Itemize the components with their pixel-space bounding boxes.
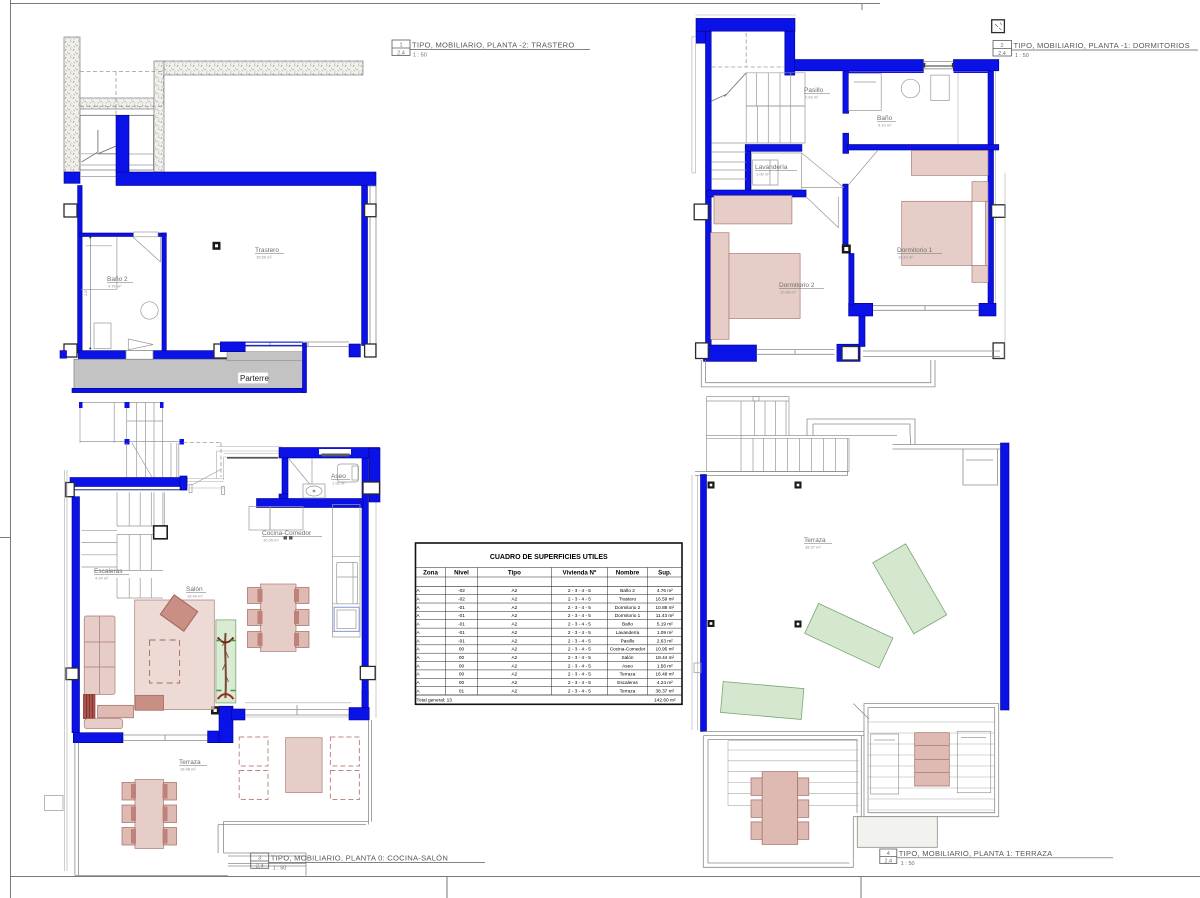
svg-text:16.48 m²: 16.48 m² [180, 767, 196, 772]
svg-text:A2: A2 [512, 647, 518, 652]
svg-text:00: 00 [459, 655, 465, 660]
svg-text:2 - 3 - 4 - 5: 2 - 3 - 4 - 5 [568, 588, 591, 593]
svg-text:4.24 m²: 4.24 m² [95, 576, 109, 581]
svg-text:38.37 m²: 38.37 m² [656, 688, 675, 693]
svg-text:01: 01 [459, 688, 465, 693]
svg-text:2 - 3 - 4 - 5: 2 - 3 - 4 - 5 [568, 596, 591, 601]
svg-text:A2: A2 [512, 680, 518, 685]
svg-text:Baño 2: Baño 2 [620, 588, 635, 593]
svg-text:-01: -01 [458, 622, 465, 627]
svg-text:Pasillo: Pasillo [621, 638, 635, 643]
svg-text:2 - 3 - 4 - 5: 2 - 3 - 4 - 5 [568, 622, 591, 627]
svg-text:1.09 m²: 1.09 m² [657, 630, 673, 635]
svg-text:2 - 3 - 4 - 5: 2 - 3 - 4 - 5 [568, 605, 591, 610]
svg-text:2.63 m²: 2.63 m² [805, 95, 819, 100]
svg-text:Cocina-Comedor: Cocina-Comedor [262, 530, 312, 537]
svg-text:2 - 3 - 4 - 5: 2 - 3 - 4 - 5 [568, 680, 591, 685]
svg-text:2 - 3 - 4 - 5: 2 - 3 - 4 - 5 [568, 663, 591, 668]
svg-text:A2: A2 [512, 638, 518, 643]
svg-text:TIPO, MOBILIARIO, PLANTA -1: D: TIPO, MOBILIARIO, PLANTA -1: DORMITORIOS [1014, 41, 1190, 50]
svg-text:Terraza: Terraza [179, 759, 201, 766]
svg-text:Dormitorio 2: Dormitorio 2 [779, 282, 815, 289]
svg-text:-01: -01 [458, 630, 465, 635]
svg-text:Dormitorio 1: Dormitorio 1 [897, 247, 933, 254]
svg-text:Tipo: Tipo [508, 570, 521, 577]
svg-text:10.88 m²: 10.88 m² [780, 290, 796, 295]
svg-text:Parterre: Parterre [240, 374, 269, 383]
svg-text:2.8: 2.8 [83, 290, 88, 296]
svg-text:2 - 3 - 4 - 5: 2 - 3 - 4 - 5 [568, 647, 591, 652]
svg-text:4.76 m²: 4.76 m² [657, 588, 673, 593]
svg-text:00: 00 [459, 680, 465, 685]
svg-text:Baño: Baño [622, 622, 633, 627]
svg-text:CUADRO DE SUPERFICIES UTILES: CUADRO DE SUPERFICIES UTILES [490, 554, 608, 561]
svg-text:A2: A2 [512, 663, 518, 668]
svg-text:16.59 m²: 16.59 m² [656, 596, 675, 601]
svg-text:00: 00 [459, 647, 465, 652]
svg-text:TIPO, MOBILIARIO, PLANTA 1: TE: TIPO, MOBILIARIO, PLANTA 1: TERRAZA [899, 849, 1053, 858]
svg-text:A2: A2 [512, 622, 518, 627]
svg-text:Cocina-Comedor: Cocina-Comedor [610, 647, 646, 652]
svg-text:2.4: 2.4 [884, 858, 892, 864]
svg-text:Nombre: Nombre [616, 570, 640, 577]
svg-text:A2: A2 [512, 672, 518, 677]
svg-text:2 - 3 - 4 - 5: 2 - 3 - 4 - 5 [568, 672, 591, 677]
svg-text:2 - 3 - 4 - 5: 2 - 3 - 4 - 5 [568, 655, 591, 660]
svg-text:A2: A2 [512, 613, 518, 618]
svg-text:2 - 3 - 4 - 5: 2 - 3 - 4 - 5 [568, 638, 591, 643]
svg-text:Lavandería: Lavandería [616, 630, 640, 635]
svg-text:-01: -01 [458, 605, 465, 610]
svg-text:Trastero: Trastero [619, 596, 637, 601]
svg-text:A2: A2 [512, 596, 518, 601]
svg-text:142.60 m²: 142.60 m² [654, 698, 676, 704]
svg-text:Vivienda Nº: Vivienda Nº [563, 570, 598, 577]
svg-text:4.24 m²: 4.24 m² [657, 680, 673, 685]
svg-text:1 : 50: 1 : 50 [1015, 53, 1029, 59]
svg-text:10.95 m²: 10.95 m² [263, 538, 279, 543]
svg-text:Lavandería: Lavandería [755, 164, 788, 171]
svg-text:-01: -01 [458, 638, 465, 643]
svg-text:A2: A2 [512, 688, 518, 693]
svg-text:Terraza: Terraza [620, 672, 636, 677]
svg-text:38.37 m²: 38.37 m² [805, 545, 821, 550]
svg-text:-01: -01 [458, 613, 465, 618]
svg-text:Terraza: Terraza [804, 537, 826, 544]
svg-text:4.76 m²: 4.76 m² [108, 284, 122, 289]
svg-text:Baño 2: Baño 2 [107, 276, 128, 283]
svg-text:1 : 50: 1 : 50 [273, 866, 287, 872]
svg-text:Salón: Salón [186, 586, 203, 593]
svg-text:2 - 3 - 4 - 5: 2 - 3 - 4 - 5 [568, 630, 591, 635]
svg-text:Trastero: Trastero [255, 247, 279, 254]
svg-text:Salón: Salón [622, 655, 634, 660]
svg-text:2.4: 2.4 [998, 51, 1006, 57]
svg-text:16.48 m²: 16.48 m² [656, 672, 675, 677]
svg-text:Sup.: Sup. [658, 570, 672, 577]
svg-text:1.56 m²: 1.56 m² [657, 663, 673, 668]
svg-text:TIPO, MOBILIARIO, PLANTA -2: T: TIPO, MOBILIARIO, PLANTA -2: TRASTERO [412, 41, 575, 50]
svg-text:Dormitorio 2: Dormitorio 2 [615, 605, 641, 610]
svg-text:2 - 3 - 4 - 5: 2 - 3 - 4 - 5 [568, 613, 591, 618]
svg-text:11.43 m²: 11.43 m² [656, 613, 675, 618]
svg-text:18.44 m²: 18.44 m² [656, 655, 675, 660]
svg-text:1.09 m²: 1.09 m² [756, 172, 770, 177]
svg-text:2 - 3 - 4 - 5: 2 - 3 - 4 - 5 [568, 688, 591, 693]
svg-text:A2: A2 [512, 630, 518, 635]
svg-text:TIPO, MOBILIARIO, PLANTA 0: CO: TIPO, MOBILIARIO, PLANTA 0: COCINA-SALÓN [271, 853, 448, 862]
svg-text:2.4: 2.4 [256, 863, 264, 869]
svg-text:2.63 m²: 2.63 m² [657, 638, 673, 643]
svg-text:18.44 m²: 18.44 m² [187, 594, 203, 599]
svg-text:-02: -02 [458, 596, 465, 601]
svg-text:1 : 50: 1 : 50 [413, 53, 427, 59]
svg-text:Terraza: Terraza [620, 688, 636, 693]
svg-text:4: 4 [887, 851, 890, 857]
svg-text:2.4: 2.4 [397, 51, 405, 57]
svg-text:Total general: 13: Total general: 13 [417, 698, 453, 704]
svg-text:10.95 m²: 10.95 m² [656, 647, 675, 652]
svg-text:00: 00 [459, 663, 465, 668]
svg-text:Escaleras: Escaleras [617, 680, 638, 685]
svg-text:2: 2 [1000, 43, 1003, 49]
svg-text:A2: A2 [512, 605, 518, 610]
svg-text:10.88 m²: 10.88 m² [656, 605, 675, 610]
svg-text:Zona: Zona [423, 570, 438, 577]
svg-text:Escaleras: Escaleras [94, 568, 123, 575]
svg-text:A2: A2 [512, 588, 518, 593]
svg-text:A2: A2 [512, 655, 518, 660]
svg-text:Nivel: Nivel [454, 570, 469, 577]
svg-text:5.19 m²: 5.19 m² [657, 622, 673, 627]
svg-text:1 : 50: 1 : 50 [901, 861, 915, 867]
svg-text:11.43 m²: 11.43 m² [898, 255, 914, 260]
svg-text:3: 3 [258, 856, 261, 862]
svg-text:Baño: Baño [877, 115, 893, 122]
svg-text:Aseo: Aseo [331, 473, 346, 480]
svg-text:5.19 m²: 5.19 m² [878, 123, 892, 128]
svg-text:1: 1 [399, 43, 402, 49]
svg-text:Aseo: Aseo [622, 663, 633, 668]
svg-text:Pasillo: Pasillo [804, 87, 824, 94]
svg-text:Dormitorio 1: Dormitorio 1 [615, 613, 641, 618]
svg-text:00: 00 [459, 672, 465, 677]
svg-text:-02: -02 [458, 588, 465, 593]
svg-text:16.59 m²: 16.59 m² [256, 255, 272, 260]
svg-text:1.56 m²: 1.56 m² [332, 481, 346, 486]
